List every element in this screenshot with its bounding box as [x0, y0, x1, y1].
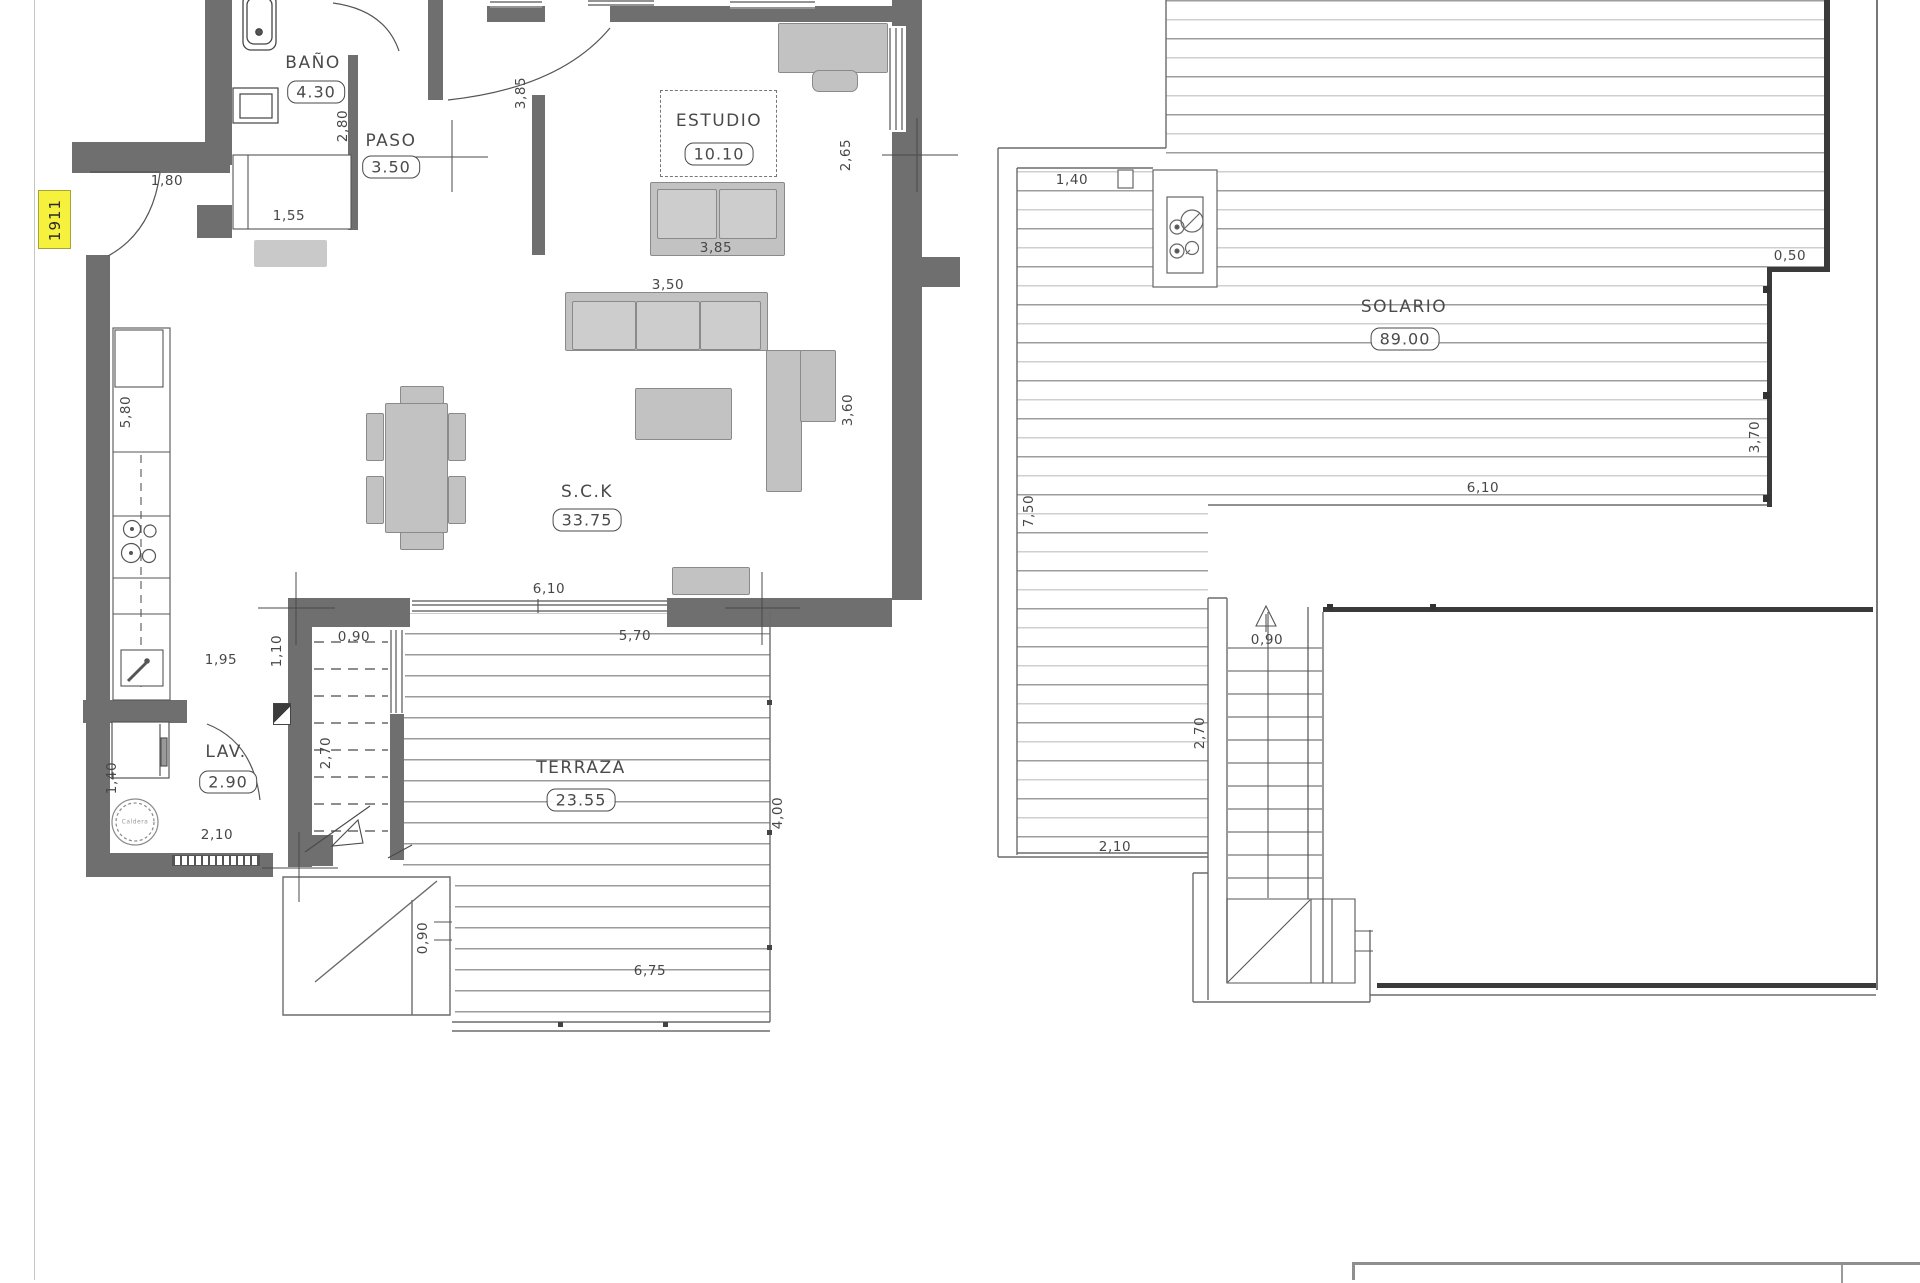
- dimension-label: 1,95: [205, 652, 237, 668]
- dimension-label: 5,80: [118, 396, 134, 428]
- dimension-label: 4,00: [770, 797, 786, 829]
- dimension-label: 0,50: [1774, 248, 1806, 264]
- dimension-label: 3,70: [1747, 421, 1763, 453]
- dimension-label: 3,85: [700, 240, 732, 256]
- title-block-divider: [1841, 1265, 1843, 1283]
- dimension-label: 2,80: [335, 110, 351, 142]
- dimension-layer: 1,802,801,553,852,653,853,503,605,801,95…: [0, 0, 1920, 1280]
- dimension-label: 7,50: [1021, 495, 1037, 527]
- dimension-label: 2,70: [1192, 717, 1208, 749]
- dimension-label: 2,70: [318, 737, 334, 769]
- dimension-label: 3,60: [840, 394, 856, 426]
- dimension-label: 5,70: [619, 628, 651, 644]
- dimension-label: 6,75: [634, 963, 666, 979]
- dimension-label: 1,40: [1056, 172, 1088, 188]
- dimension-label: 3,85: [513, 77, 529, 109]
- dimension-label: 0,90: [338, 629, 370, 645]
- dimension-label: 0,90: [1251, 632, 1283, 648]
- dimension-label: 1,55: [273, 208, 305, 224]
- dimension-label: 2,10: [201, 827, 233, 843]
- dimension-label: 0,90: [415, 922, 431, 954]
- dimension-label: 2,10: [1099, 839, 1131, 855]
- title-block: [1352, 1262, 1920, 1280]
- dimension-label: 1,40: [104, 762, 120, 794]
- dimension-label: 2,65: [838, 139, 854, 171]
- floor-plan: 1911 BAÑO 4.30 PASO 3.50 ESTUDIO 10.10 S…: [0, 0, 1920, 1280]
- dimension-label: 6,10: [533, 581, 565, 597]
- dimension-label: 3,50: [652, 277, 684, 293]
- dimension-label: 1,80: [151, 173, 183, 189]
- dimension-label: 6,10: [1467, 480, 1499, 496]
- dimension-label: 1,10: [269, 635, 285, 667]
